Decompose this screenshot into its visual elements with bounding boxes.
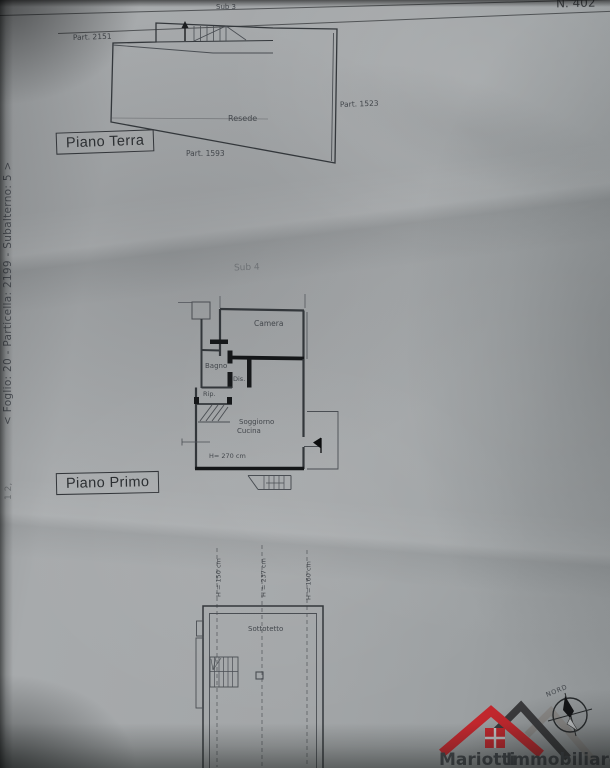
floorplan-photo: N. 402 < Foglio: 20 - Particella: 2199 -… <box>0 0 610 768</box>
first-floor-title: Piano Primo <box>56 471 160 495</box>
external-stair-icon <box>248 476 291 490</box>
entrance-arrow-icon <box>304 438 321 454</box>
first-floor-sub-label: Sub 4 <box>234 263 260 274</box>
attic-stair-icon <box>210 657 238 687</box>
attic-height-right: H = 160 cm <box>305 561 313 600</box>
document-number: N. 402 <box>556 0 596 10</box>
first-floor-plan: Camera Bagno Dis. Rip. Soggiorno Cucina … <box>170 290 350 502</box>
room-label-cucina: Cucina <box>237 427 261 435</box>
parcel-label-right: Part. 1523 <box>340 99 379 109</box>
ceiling-height-label: H= 270 cm <box>209 452 246 460</box>
room-label-soggiorno: Soggiorno <box>239 418 274 426</box>
ground-floor-title: Piano Terra <box>56 129 155 154</box>
attic-plan: H = 150 cm H = 237 cm H = 160 cm Sottote… <box>180 540 340 768</box>
room-label-camera: Camera <box>254 319 283 328</box>
courtyard-label: Resede <box>228 114 257 123</box>
ground-floor-stair-icon <box>156 26 273 42</box>
logo-name-first: Mariotti <box>439 750 515 768</box>
attic-height-mid: H = 237 cm <box>260 558 268 597</box>
attic-room-label: Sottotetto <box>248 625 283 633</box>
internal-stair-icon <box>198 405 230 422</box>
parcel-label-left: Part. 2151 <box>73 32 112 42</box>
agency-logo: NORD Mariotti Immobiliare <box>435 680 610 768</box>
cadastral-reference-text: < Foglio: 20 - Particella: 2199 - Subalt… <box>2 161 14 425</box>
ground-floor-sub-label: Sub 3 <box>216 3 236 11</box>
window-icon <box>485 728 505 748</box>
logo-name-second: Immobiliare <box>506 750 610 768</box>
room-label-bagno: Bagno <box>205 362 227 370</box>
attic-height-left: H = 150 cm <box>215 558 223 597</box>
margin-fragment-text: 1 2, <box>4 483 14 500</box>
room-label-rip: Rip. <box>203 390 216 398</box>
terrace-outline <box>307 412 338 470</box>
room-label-dis: Dis. <box>233 375 245 383</box>
parcel-label-bottom: Part. 1593 <box>186 149 225 158</box>
